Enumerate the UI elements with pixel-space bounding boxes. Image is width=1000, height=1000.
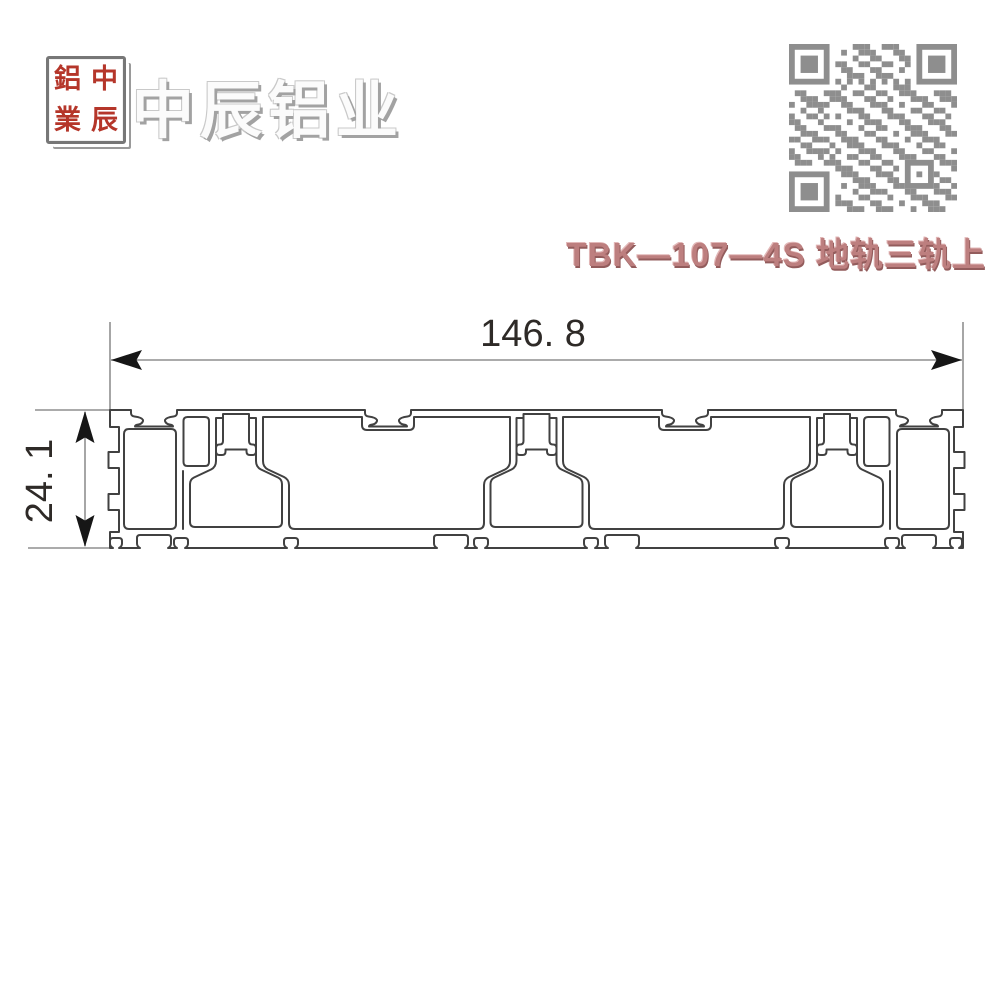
height-dimension-label: 24. 1 — [19, 439, 61, 524]
extrusion-profile-outline — [109, 410, 965, 548]
width-dimension-label: 146. 8 — [480, 313, 586, 355]
drawing-page: 鋁 中 業 辰 中辰铝业 TBK—107—4S 地轨三轨上 146. 8 24.… — [0, 0, 1000, 1000]
profile-technical-drawing: 146. 8 24. 1 — [0, 0, 1000, 1000]
